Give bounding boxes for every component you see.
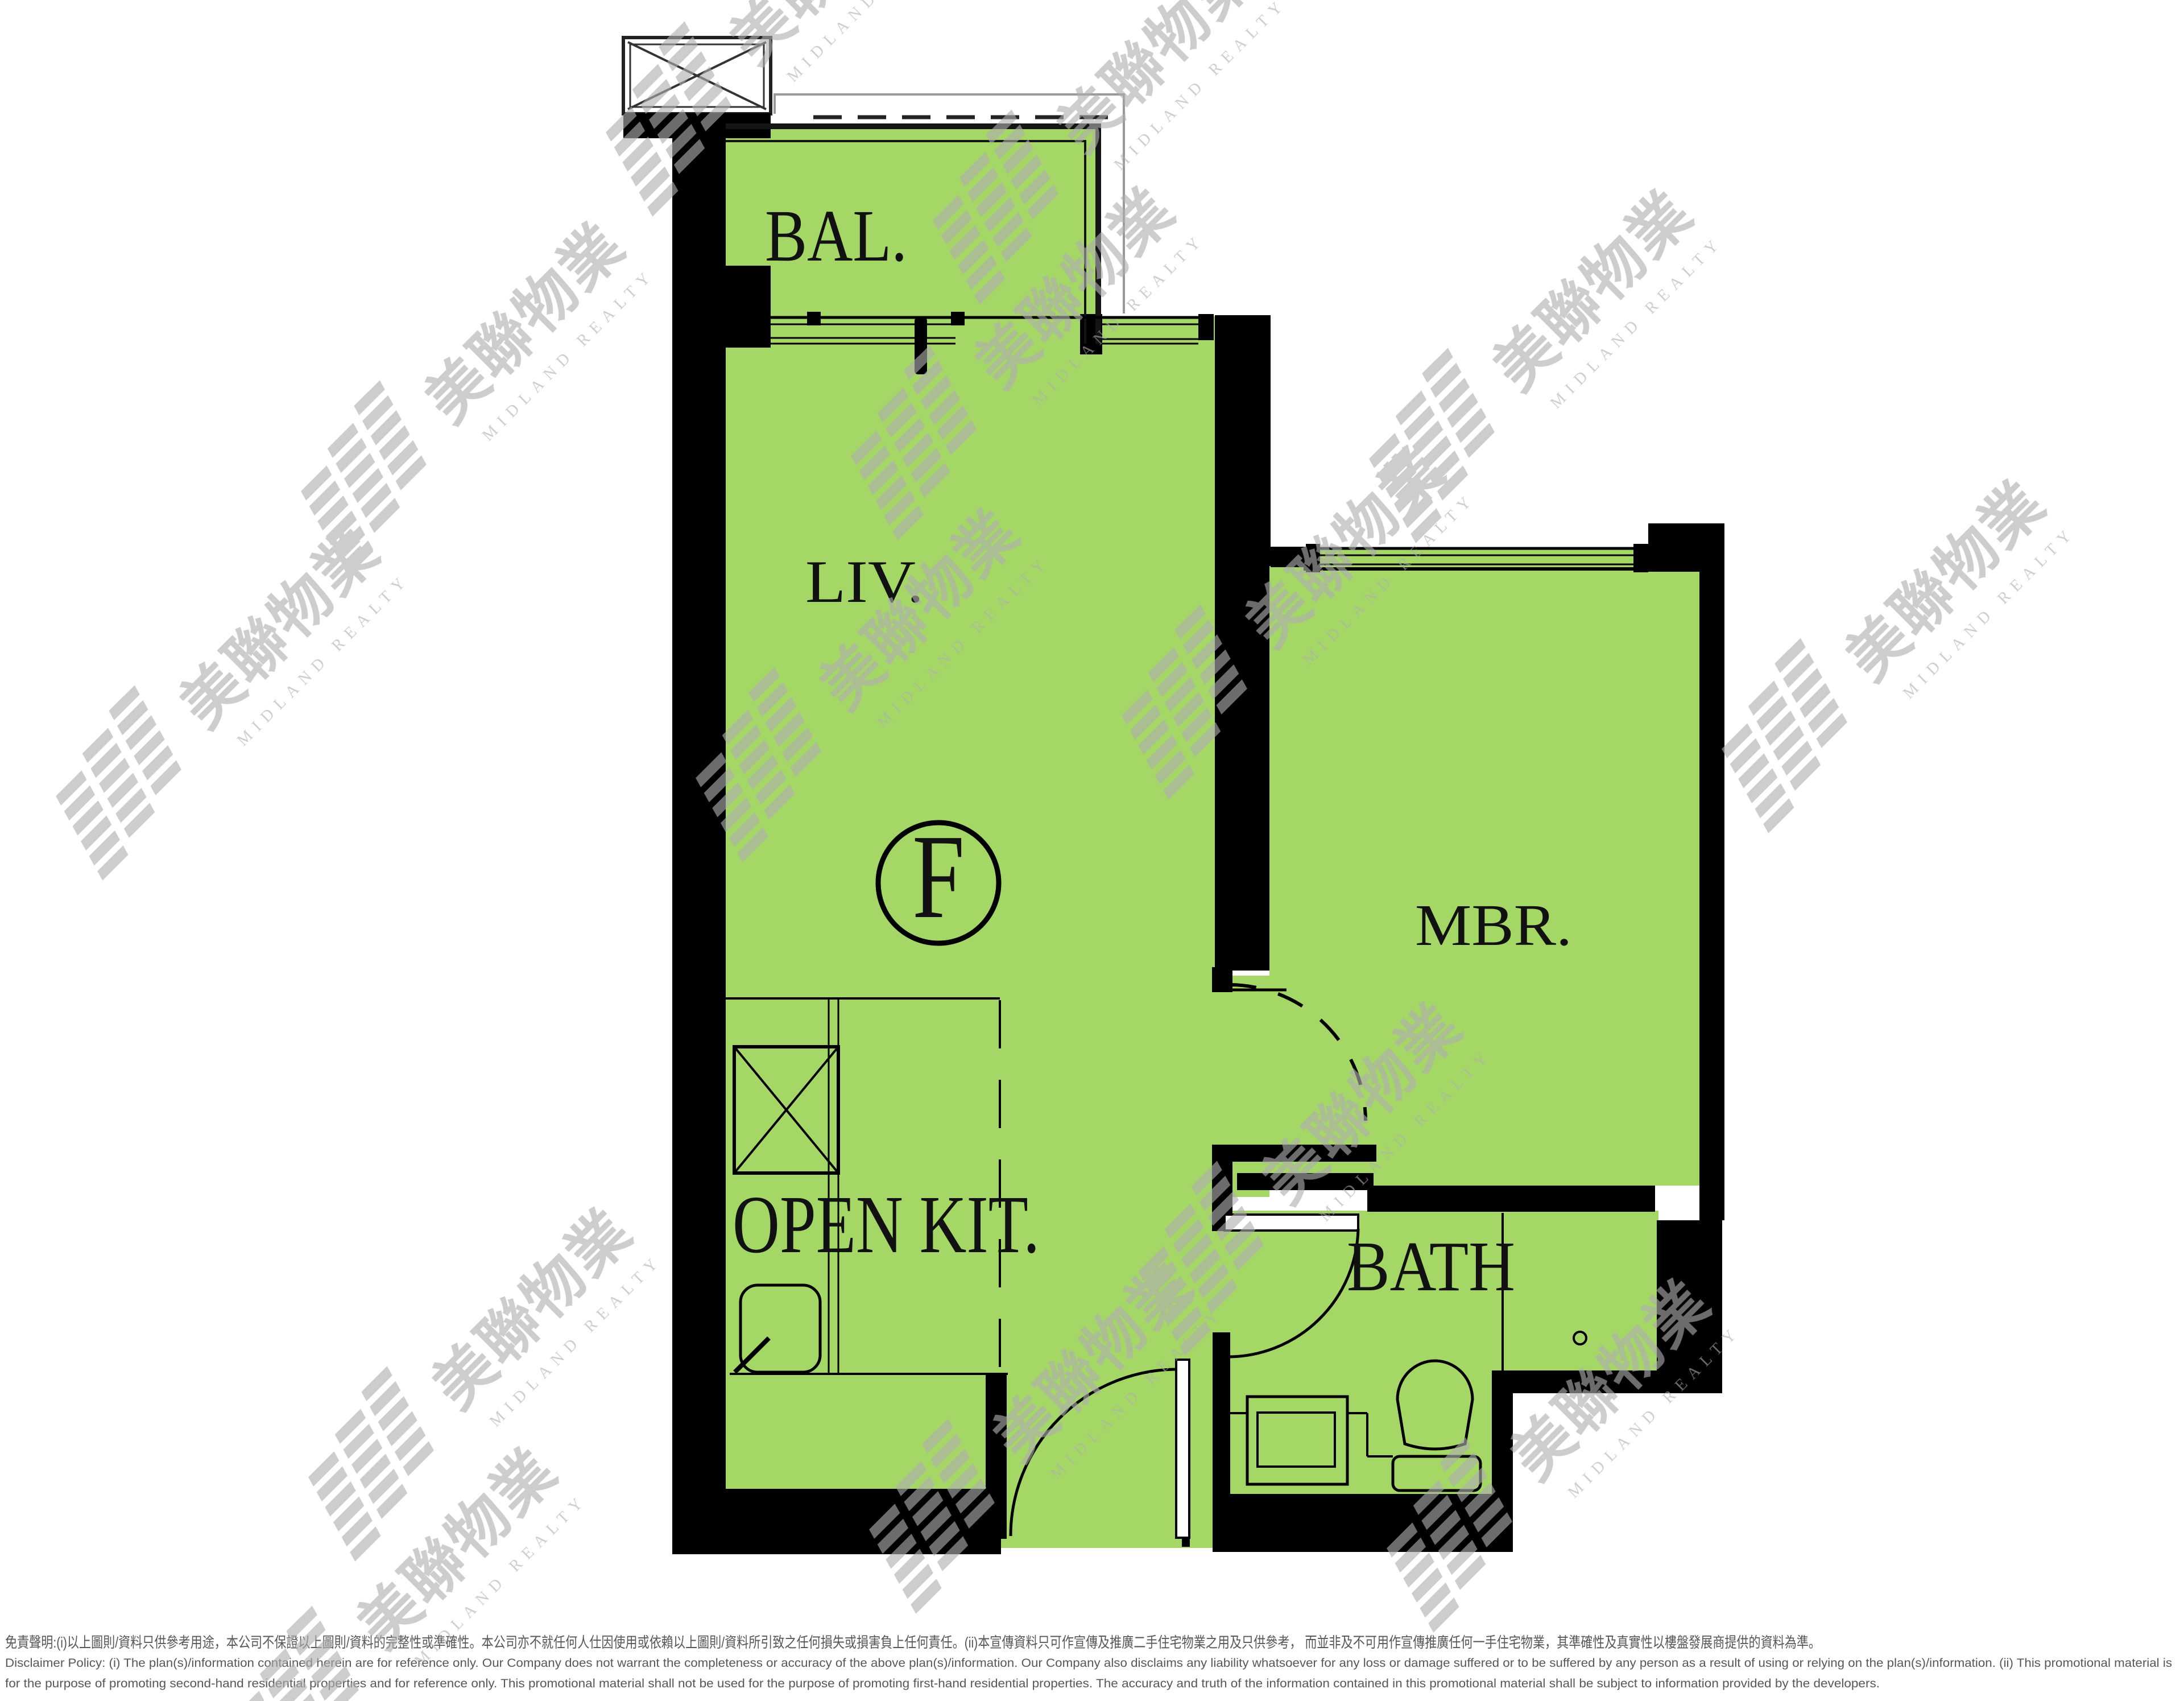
svg-text:OPEN KIT.: OPEN KIT. — [733, 1179, 1040, 1270]
svg-text:BATH: BATH — [1347, 1228, 1515, 1306]
svg-text:BAL.: BAL. — [765, 195, 907, 277]
svg-text:F: F — [912, 810, 965, 943]
svg-text:免責聲明:(i)以上圖則/資料只供參考用途，本公司不保證以上: 免責聲明:(i)以上圖則/資料只供參考用途，本公司不保證以上圖則/資料的完整性或… — [5, 1634, 1821, 1651]
svg-text:MBR.: MBR. — [1415, 893, 1572, 958]
